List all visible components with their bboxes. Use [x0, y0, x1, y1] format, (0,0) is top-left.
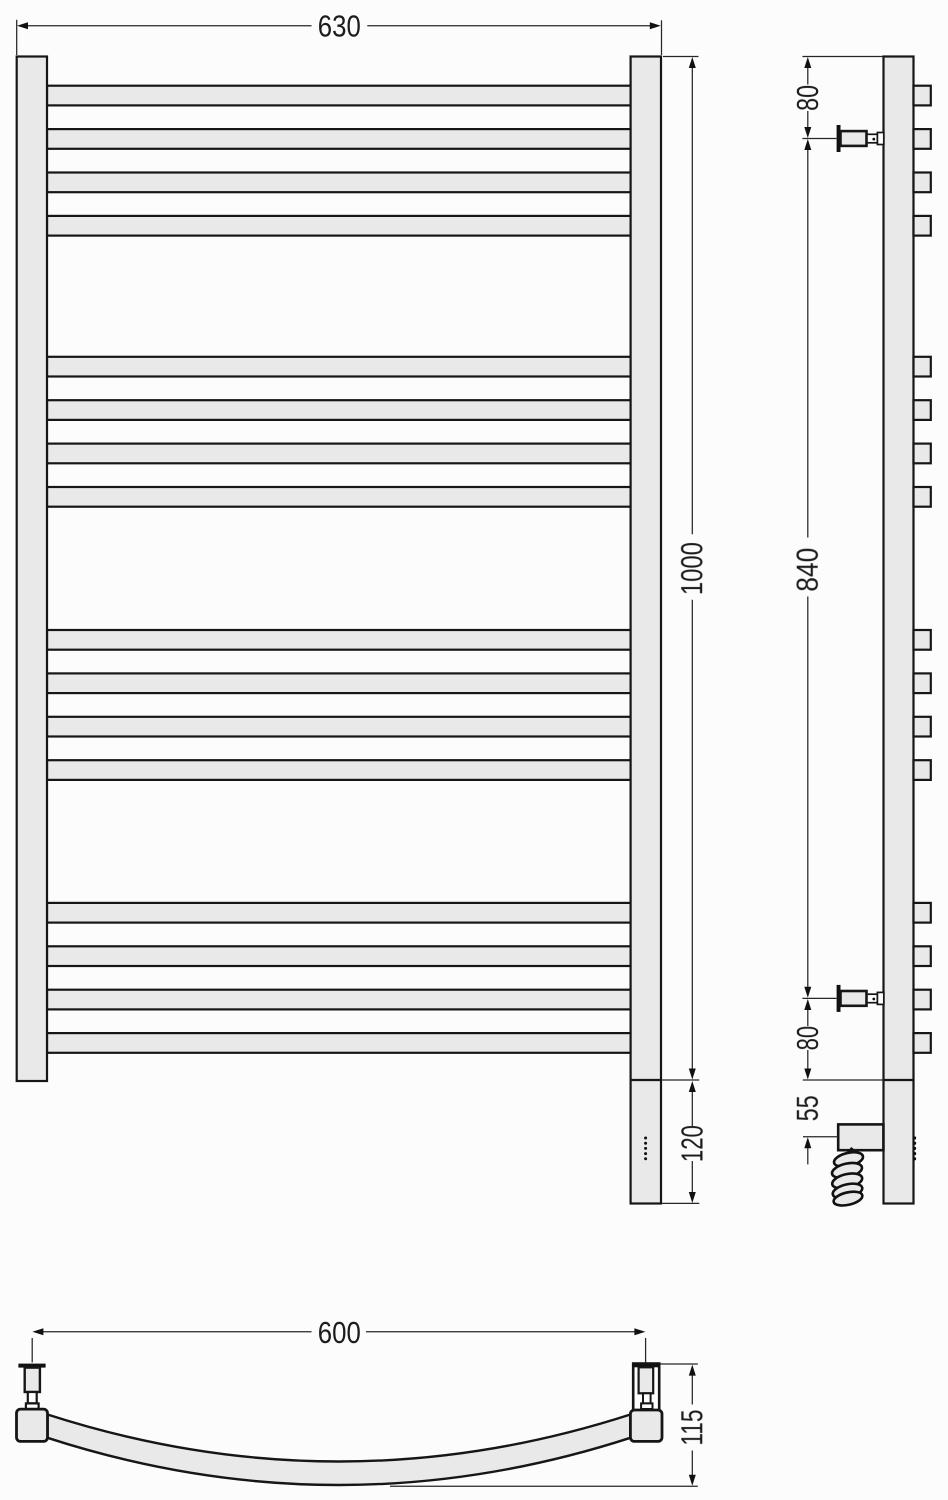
svg-text:600: 600	[318, 1315, 361, 1350]
svg-text:55: 55	[790, 1095, 825, 1121]
svg-text:80: 80	[790, 85, 825, 111]
svg-text:1000: 1000	[674, 542, 709, 595]
svg-text:115: 115	[674, 1410, 709, 1446]
svg-text:120: 120	[675, 1125, 710, 1162]
svg-text:80: 80	[790, 1026, 825, 1051]
svg-text:630: 630	[318, 9, 361, 44]
svg-text:840: 840	[790, 548, 825, 592]
